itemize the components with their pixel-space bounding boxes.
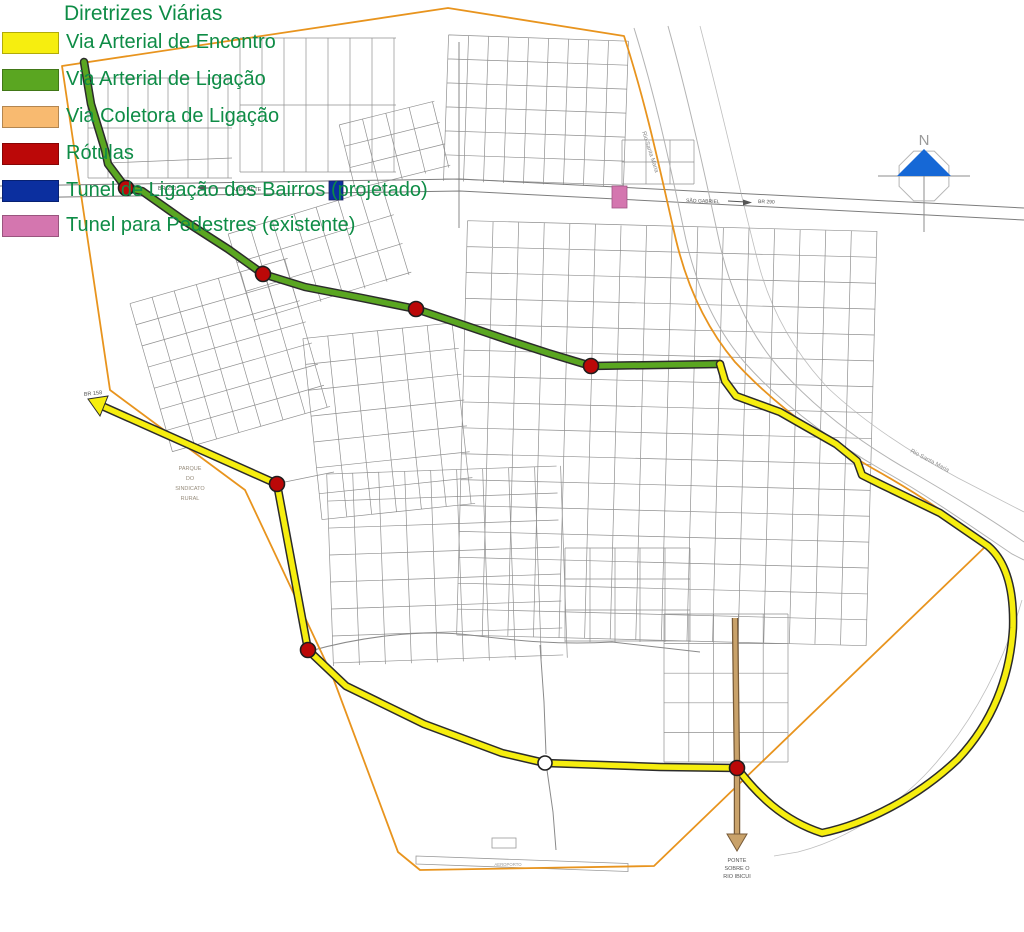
city-map: N BR 290 ALEGRETE SÃO GABRIEL BR 290 BR … bbox=[0, 0, 1024, 932]
legend-item-encontro: Via Arterial de Encontro bbox=[0, 31, 470, 57]
legend-item-tunel-bairros: Tunel de Ligação dos Bairros (projetado) bbox=[0, 179, 470, 205]
parque-label-line2: DO bbox=[186, 476, 195, 482]
legend-item-coletora: Via Coletora de Ligação bbox=[0, 105, 470, 131]
intersection-marker-white bbox=[538, 756, 552, 770]
legend-label: Tunel para Pedestres (existente) bbox=[66, 214, 355, 237]
roundabout-marker bbox=[256, 267, 271, 282]
north-arrow-pointer-icon bbox=[897, 149, 951, 176]
parque-label-line1: PARQUE bbox=[179, 466, 202, 472]
legend-item-ligacao: Via Arterial de Ligação bbox=[0, 68, 470, 94]
roundabout-marker bbox=[270, 477, 285, 492]
airport-building bbox=[492, 838, 516, 848]
parque-label-line3: SINDICATO bbox=[175, 486, 205, 492]
legend-swatch-green bbox=[2, 69, 59, 91]
roundabout-marker bbox=[730, 761, 745, 776]
parque-label-line4: RURAL bbox=[181, 496, 200, 502]
legend-swatch-blue bbox=[2, 180, 59, 202]
roundabout-markers bbox=[119, 181, 745, 776]
boundary-via-coletora bbox=[62, 8, 987, 870]
tunnel-pedestres-marker bbox=[612, 186, 627, 208]
roundabout-marker bbox=[584, 359, 599, 374]
ponte-label-line2: SOBRE O bbox=[724, 866, 750, 872]
ponte-label-line1: PONTE bbox=[728, 858, 747, 864]
legend-label: Via Arterial de Ligação bbox=[66, 68, 266, 91]
bridge-direction-arrow-icon bbox=[727, 834, 747, 851]
map-canvas: N BR 290 ALEGRETE SÃO GABRIEL BR 290 BR … bbox=[0, 0, 1024, 932]
ponte-label-line3: RIO IBICUI bbox=[723, 874, 751, 880]
roundabout-marker bbox=[409, 302, 424, 317]
north-label: N bbox=[919, 132, 930, 149]
rio-santa-maria-east-label: Rio Santa Maria bbox=[909, 448, 950, 474]
sao-gabriel-label: SÃO GABRIEL bbox=[686, 197, 720, 205]
legend-label: Via Arterial de Encontro bbox=[66, 31, 276, 54]
legend-item-rotulas: Rótulas bbox=[0, 142, 470, 168]
legend-label: Rótulas bbox=[66, 142, 134, 165]
legend-swatch-yellow bbox=[2, 32, 59, 54]
legend-swatch-orange bbox=[2, 106, 59, 128]
aeroporto-label: AEROPORTO bbox=[494, 862, 522, 867]
legend-label: Tunel de Ligação dos Bairros (projetado) bbox=[66, 179, 428, 202]
legend-title: Diretrizes Viárias bbox=[64, 2, 222, 26]
legend-swatch-red bbox=[2, 143, 59, 165]
legend-item-tunel-pedestres: Tunel para Pedestres (existente) bbox=[0, 214, 470, 240]
br290-right-label: BR 290 bbox=[758, 199, 775, 206]
legend-label: Via Coletora de Ligação bbox=[66, 105, 279, 128]
east-arrow-head-icon bbox=[743, 200, 752, 206]
bridge-road bbox=[727, 618, 747, 851]
legend-swatch-pink bbox=[2, 215, 59, 237]
roundabout-marker bbox=[301, 643, 316, 658]
